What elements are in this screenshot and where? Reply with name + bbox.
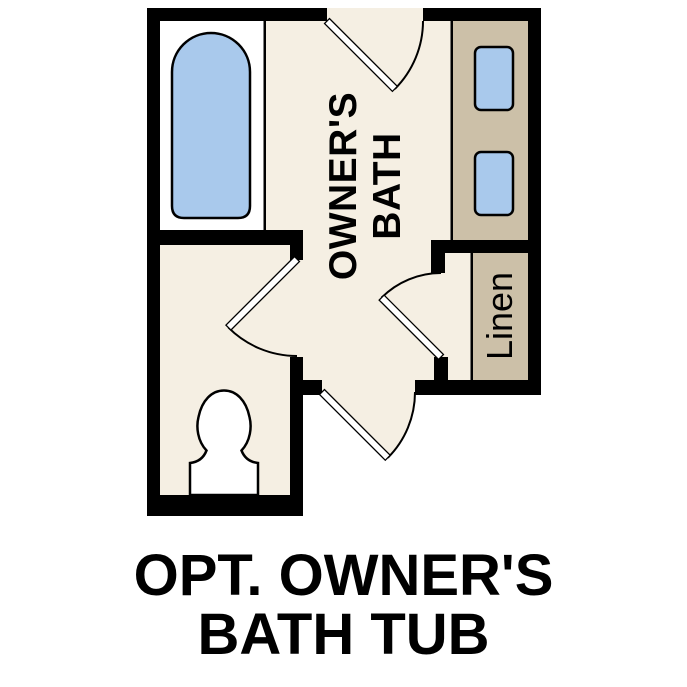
linen-shelf-edge-line [471, 253, 474, 380]
wall-linen-jamb-top [431, 253, 445, 273]
wall-wc-bottom [147, 495, 303, 516]
wall-wc-right [290, 357, 303, 516]
bathtub [172, 33, 250, 218]
floor-plan: OWNER'S BATH Linen OPT. OWNER'S BATH TUB [0, 0, 687, 687]
wall-linen-jamb-bottom [434, 357, 448, 380]
vanity-sink-top [475, 47, 513, 110]
linen-shelf [473, 253, 528, 380]
tub-alcove-edge-line [264, 21, 267, 230]
wall-wc-door-jamb-top [290, 230, 303, 260]
wall-top-left [147, 8, 327, 21]
vanity-edge-line [451, 21, 454, 241]
wall-top-right [423, 8, 541, 21]
vanity-sink-bottom [475, 152, 513, 215]
wall-linen-bottom [415, 380, 541, 395]
wall-tub-wc-divider [147, 230, 303, 245]
wall-vanity-bottom [431, 240, 541, 253]
wall-left [147, 8, 160, 516]
floor-plan-drawing [0, 0, 687, 687]
wall-right [528, 8, 541, 395]
wall-entry-door-jamb [303, 380, 322, 395]
